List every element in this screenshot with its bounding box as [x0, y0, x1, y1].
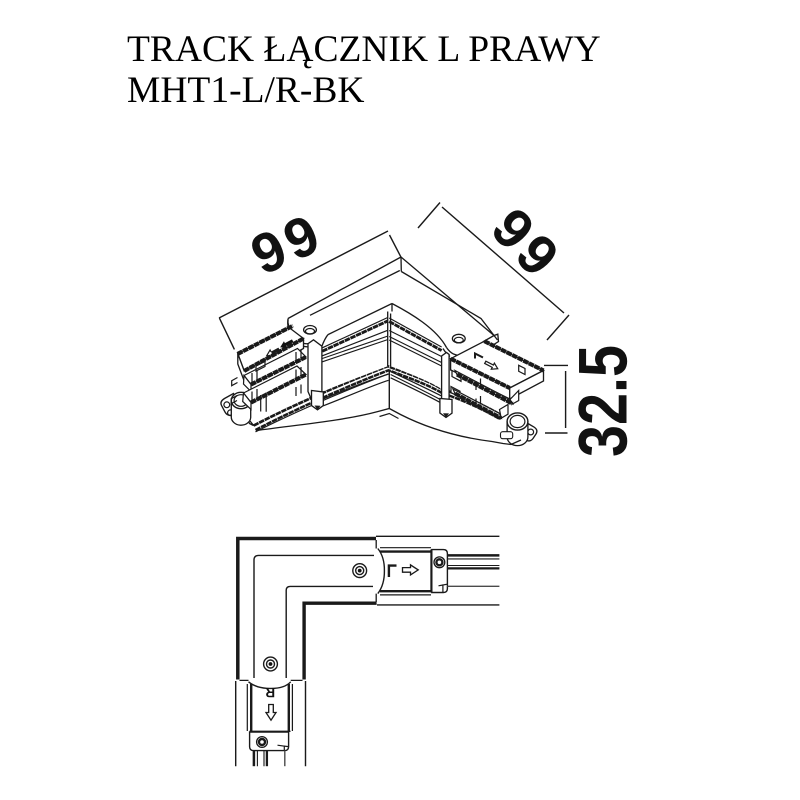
svg-text:MHT1-L/R-BK: MHT1-L/R-BK — [127, 70, 365, 111]
svg-text:R: R — [265, 685, 275, 700]
svg-text:TRACK ŁĄCZNIK L PRAWY: TRACK ŁĄCZNIK L PRAWY — [127, 29, 601, 70]
svg-text:32.5: 32.5 — [565, 345, 642, 457]
